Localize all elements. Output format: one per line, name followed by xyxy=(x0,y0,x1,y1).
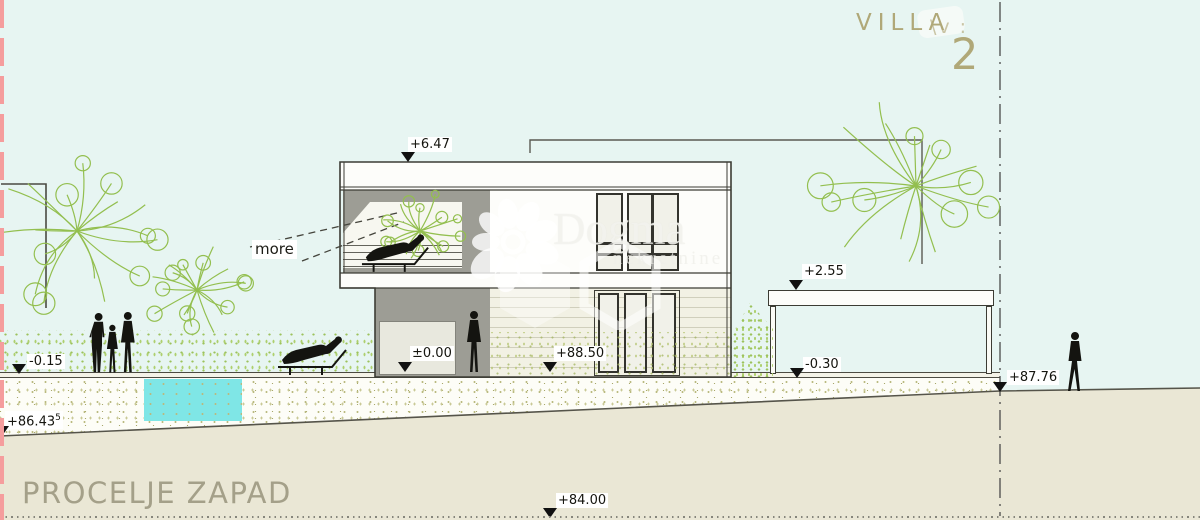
elevation-triangle-roof-level xyxy=(401,152,415,162)
elevation-label-pool-deck-level: -0.15 xyxy=(27,354,65,369)
elevation-label-absolute-8850: +88.50 xyxy=(554,346,606,361)
more-annotation: more xyxy=(252,240,297,259)
elevation-markers-layer: +6.47±0.00+88.50+2.55-0.30-0.15+86.435+8… xyxy=(0,0,1200,520)
elevation-triangle-carport-floor-level xyxy=(790,368,804,378)
boundary-marker-red-dashed xyxy=(0,0,4,520)
elevation-triangle-ground-floor-level xyxy=(398,362,412,372)
architectural-elevation-drawing: Dogma nekretnine +6.47±0.00+88.50+2.55-0… xyxy=(0,0,1200,520)
elevation-triangle-pool-deck-level xyxy=(12,364,26,374)
facade-title: PROCELJE ZAPAD xyxy=(22,476,292,510)
elevation-label-absolute-8643: +86.435 xyxy=(5,411,63,429)
elevation-label-roof-level: +6.47 xyxy=(408,137,452,152)
elevation-triangle-absolute-8850 xyxy=(543,362,557,372)
drawing-title-number: 2 xyxy=(951,30,978,80)
elevation-label-absolute-8776: +87.76 xyxy=(1007,370,1059,385)
elevation-triangle-absolute-8776 xyxy=(993,382,1007,392)
elevation-label-carport-floor-level: -0.30 xyxy=(803,357,841,372)
elevation-label-absolute-8400: +84.00 xyxy=(556,493,608,508)
elevation-label-carport-roof-level: +2.55 xyxy=(802,264,846,279)
elevation-label-ground-floor-level: ±0.00 xyxy=(410,346,454,361)
elevation-triangle-carport-roof-level xyxy=(789,280,803,290)
base-reference-dotted-line xyxy=(0,516,1200,518)
